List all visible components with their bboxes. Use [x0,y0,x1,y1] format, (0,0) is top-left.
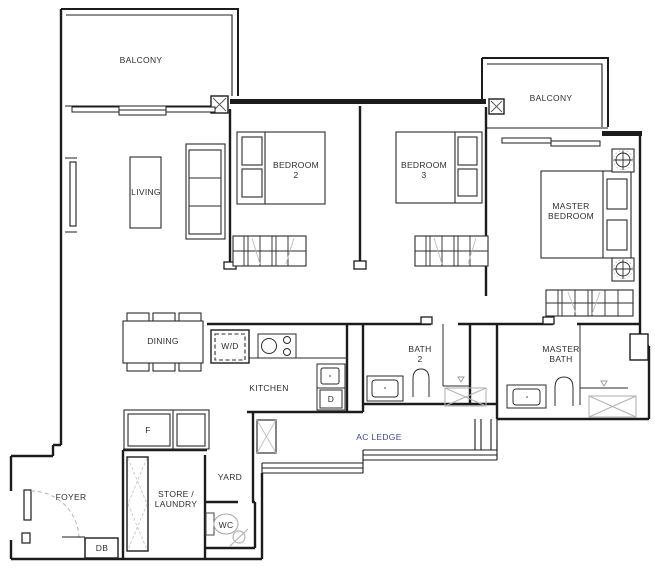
wc-toilet [206,513,238,535]
window-wall-master [602,131,642,136]
wardrobe-bedroom-2 [233,236,306,266]
fridge-cabinet [124,410,209,449]
bath2-fixtures [367,324,470,401]
entry-door [22,490,79,543]
wc-corner-basin [230,529,248,546]
db-box [62,537,118,558]
hob-icon [258,334,296,358]
column-icon [211,96,504,114]
ac-unit-icon [589,396,636,417]
floor-plan: BALCONY LIVING BEDROOM 2 BEDROOM 3 BALCO… [0,0,655,571]
washer-dryer-box [211,330,249,363]
sofa [186,144,225,239]
wall-stubs [224,261,554,324]
bed-bedroom-2 [237,132,325,204]
bed-bedroom-3 [396,132,482,203]
balcony-2-sliding-door [502,138,600,146]
floorplan-drawing [0,0,655,571]
master-bath-fixtures [507,324,648,408]
dining-set [123,313,203,371]
living-window [65,158,77,232]
yard-ac-box [257,420,276,453]
wardrobe-master [546,290,633,316]
balcony-1-railing [61,9,238,106]
tv-console [130,157,161,228]
wardrobe-bedroom-3 [415,236,488,266]
door-swing-arc [31,491,79,539]
bed-master [541,171,631,258]
balcony-2-railing [482,58,608,128]
exterior-walls [11,9,649,559]
balcony-1-sliding-door [72,107,215,115]
store-cabinet [127,457,148,551]
ac-ledge-parapet [262,419,497,473]
kitchen-sink-dishwasher [317,364,345,410]
window-wall-bedrooms [230,99,486,104]
